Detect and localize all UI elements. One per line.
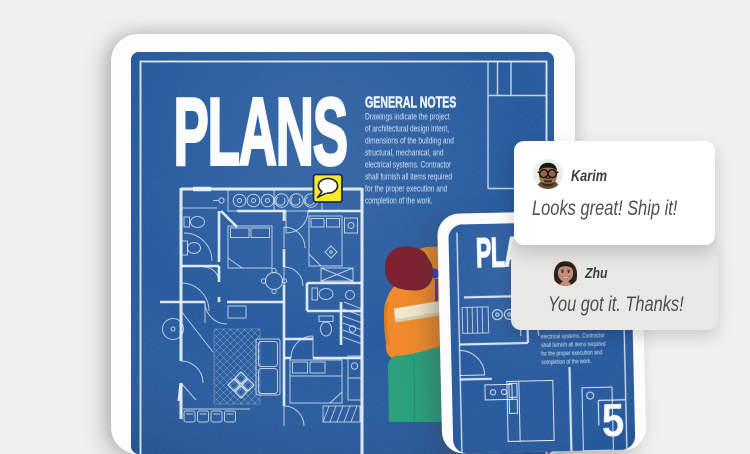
svg-text:5: 5	[601, 395, 625, 446]
svg-text:PLANS: PLANS	[174, 79, 347, 186]
svg-text:GENERAL NOTES: GENERAL NOTES	[365, 93, 456, 111]
svg-text:Drawings indicate the project: Drawings indicate the project of archite…	[365, 111, 456, 205]
